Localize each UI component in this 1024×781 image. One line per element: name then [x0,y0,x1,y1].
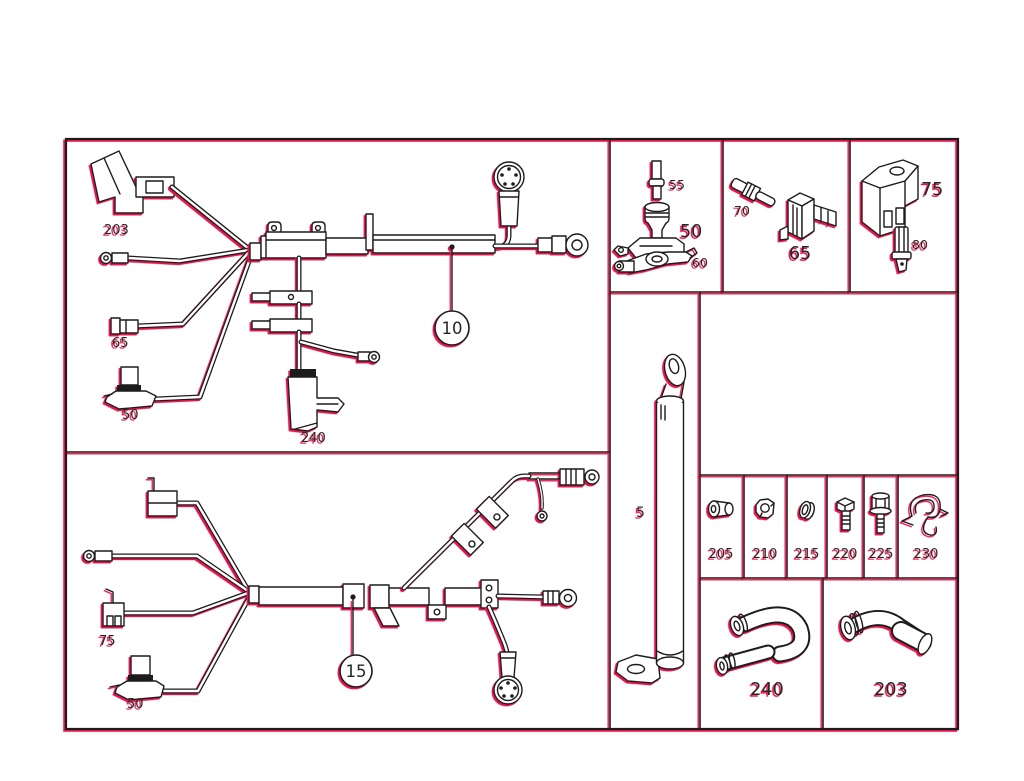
label-50[interactable]: 50 [122,408,139,423]
label-203-cell[interactable]: 203 [874,680,907,700]
label-50-panel[interactable]: 50 [680,222,702,242]
harness10-wire-203 [172,187,249,249]
part-205-bushing [709,501,734,517]
panel-grid [66,139,958,729]
battery-terminal-panel: 55 50 60 [614,161,708,273]
cable-panel: 5 [616,352,689,683]
fastener-row-labels: 205 210 215 220 225 230 [709,547,939,562]
grommet-cells: 240 203 [714,611,934,700]
grommet-cell-labels: 240 203 [750,680,907,700]
label-203[interactable]: 203 [104,223,129,238]
label-75-panel[interactable]: 75 [921,180,943,200]
label-70[interactable]: 70 [734,203,750,218]
harness15-trunk [249,580,577,626]
part-240-grommet [714,613,801,675]
connector-panel: 70 65 [729,176,836,264]
label-240-cell[interactable]: 240 [750,680,783,700]
harness15-bracket-75 [103,589,248,626]
bracket-panel: 75 80 [862,160,943,272]
label-60[interactable]: 60 [692,255,708,270]
part-210-nut [756,499,774,518]
part-75-bracket [862,160,918,236]
part-65-holder [780,193,836,240]
part-80-sensor [892,227,911,272]
part-55-bolt [649,161,664,199]
label-225[interactable]: 225 [869,547,894,562]
harness10-boot-240 [288,369,344,431]
callout-10[interactable]: 10 [435,244,469,345]
label-215[interactable]: 215 [795,547,820,562]
harness-10-panel: 203 65 50 240 10 [91,151,588,446]
part-215-washer [798,500,817,520]
harness10-round-connector [479,162,524,247]
label-220[interactable]: 220 [833,547,858,562]
harness15-round-connector [489,607,522,704]
label-75[interactable]: 75 [99,634,116,649]
harness10-ring-branch [101,250,250,264]
harness10-connector-203 [91,151,174,213]
harness15-diagonal-branch [404,469,599,588]
part-220-bolt [837,498,854,530]
label-5[interactable]: 5 [636,505,645,521]
cable-panel-label: 5 [636,505,645,521]
harness-15-panel: 75 50 15 [84,469,600,712]
harness15-ring-branch [84,551,249,592]
label-65[interactable]: 65 [112,336,129,351]
part-50-terminal [614,203,684,259]
harness15-branch-connector [148,478,248,590]
part-5-cable [616,352,689,683]
label-55[interactable]: 55 [669,177,685,192]
part-230-clip [902,495,948,536]
parts-diagram-page: 203 65 50 240 10 [0,0,1024,781]
label-65-panel[interactable]: 65 [789,244,811,264]
label-50b[interactable]: 50 [127,697,144,712]
label-205[interactable]: 205 [709,547,734,562]
callout-15-number[interactable]: 15 [346,662,367,681]
label-230[interactable]: 230 [914,547,939,562]
label-80[interactable]: 80 [912,237,928,252]
part-203-grommet [838,611,935,657]
label-210[interactable]: 210 [753,547,778,562]
callout-15[interactable]: 15 [340,600,372,687]
harness10-trunk [250,214,588,260]
harness10-mid-branch [252,258,380,370]
parts-diagram: 203 65 50 240 10 [0,0,1024,781]
label-240[interactable]: 240 [301,431,326,446]
part-225-screw [870,493,891,533]
callout-10-number[interactable]: 10 [442,319,463,338]
